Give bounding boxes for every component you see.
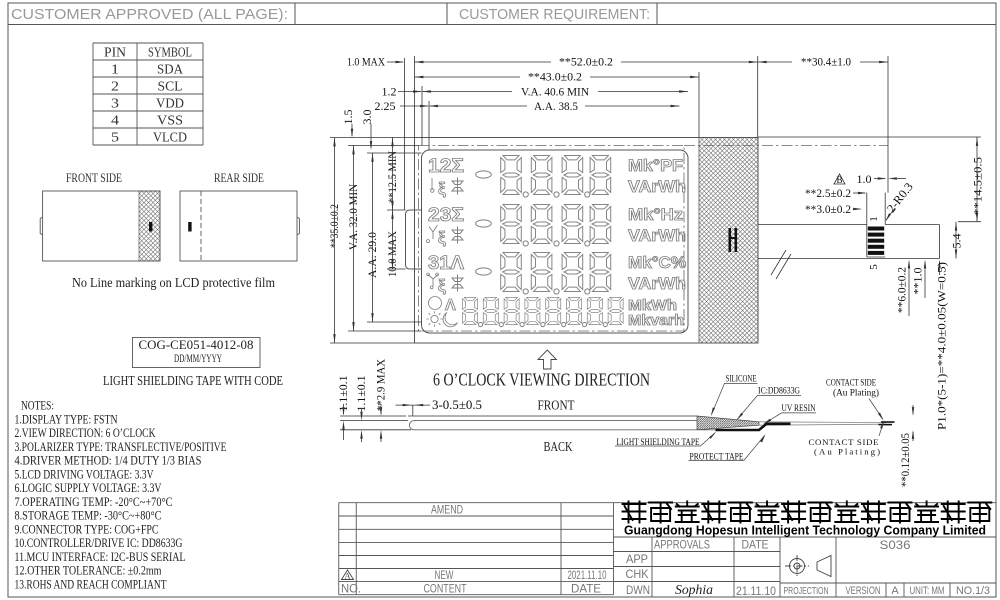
svg-text:2-R0.3: 2-R0.3	[884, 180, 916, 215]
svg-text:DWN: DWN	[626, 583, 650, 597]
svg-text:3.0: 3.0	[360, 110, 374, 125]
svg-text:VERSION: VERSION	[846, 585, 881, 597]
svg-text:BACK: BACK	[544, 439, 573, 454]
svg-text:13.ROHS AND REACH COMPLIANT: 13.ROHS AND REACH COMPLIANT	[15, 577, 167, 591]
svg-text:(Au Plating): (Au Plating)	[814, 447, 880, 457]
svg-text:2021.11.10: 2021.11.10	[568, 568, 607, 582]
svg-text:Λ: Λ	[445, 297, 456, 314]
svg-text:P1.0*(5-1)=**4.0±0.05(W=0.5): P1.0*(5-1)=**4.0±0.05(W=0.5)	[937, 262, 949, 430]
svg-text:(Au Plating): (Au Plating)	[833, 388, 879, 399]
svg-text:1.5: 1.5	[341, 110, 355, 125]
svg-text:8.STORAGE TEMP: -30°C~+80°C: 8.STORAGE TEMP: -30°C~+80°C	[15, 509, 162, 523]
svg-text:Sophia: Sophia	[675, 582, 713, 597]
svg-text:1.DISPLAY TYPE: FSTN: 1.DISPLAY TYPE: FSTN	[15, 412, 118, 426]
svg-text:SYMBOL: SYMBOL	[148, 46, 192, 61]
svg-text:NEW: NEW	[435, 568, 454, 582]
svg-text:NO.1/3: NO.1/3	[956, 585, 990, 597]
svg-text:V.A. 32.0 MIN: V.A. 32.0 MIN	[346, 184, 360, 250]
svg-text:5: 5	[111, 131, 119, 146]
svg-text:**1.0: **1.0	[911, 268, 925, 295]
svg-text:CUSTOMER APPROVED (ALL PAGE):: CUSTOMER APPROVED (ALL PAGE):	[11, 6, 288, 23]
svg-text:5.4: 5.4	[950, 234, 964, 249]
svg-text:CONTACT SIDE: CONTACT SIDE	[826, 379, 876, 389]
svg-text:1: 1	[868, 216, 880, 222]
svg-text:1.0: 1.0	[857, 172, 872, 186]
svg-text:B: B	[836, 175, 842, 185]
svg-text:7.OPERATING TEMP: -20°C~+70°C: 7.OPERATING TEMP: -20°C~+70°C	[15, 495, 173, 509]
svg-text:VArWh: VArWh	[628, 275, 686, 293]
svg-text:**52.0±0.2: **52.0±0.2	[559, 55, 613, 69]
svg-text:6.LOGIC SUPPLY VOLTAGE: 3.3V: 6.LOGIC SUPPLY VOLTAGE: 3.3V	[15, 481, 162, 495]
svg-text:**3.0±0.2: **3.0±0.2	[805, 202, 851, 216]
svg-text:**30.4±1.0: **30.4±1.0	[801, 55, 851, 69]
svg-text:ξ: ξ	[438, 276, 446, 295]
svg-text:1.1±0.1: 1.1±0.1	[354, 376, 368, 412]
svg-text:UNIT: MM: UNIT: MM	[910, 585, 945, 597]
svg-text:COG-CE051-4012-08: COG-CE051-4012-08	[139, 337, 254, 352]
svg-text:4.DRIVER METHOD: 1/4 DUTY 1/3: 4.DRIVER METHOD: 1/4 DUTY 1/3 BIAS	[15, 454, 202, 468]
svg-text:Mkvarh: Mkvarh	[628, 313, 684, 329]
svg-text:A: A	[345, 572, 351, 581]
svg-text:APPROVALS: APPROVALS	[654, 538, 710, 552]
svg-text:4: 4	[111, 114, 119, 129]
svg-text:1.2: 1.2	[382, 85, 397, 99]
svg-text:1.1±0.1: 1.1±0.1	[336, 376, 350, 412]
svg-text:S036: S036	[880, 538, 911, 552]
svg-text:10.0 MAX: 10.0 MAX	[385, 231, 399, 277]
svg-text:31Λ: 31Λ	[428, 253, 464, 274]
svg-text:12Σ: 12Σ	[428, 156, 464, 177]
svg-text:NO.: NO.	[341, 582, 361, 596]
svg-text:VSS: VSS	[157, 114, 183, 129]
svg-text:VDD: VDD	[156, 97, 184, 112]
svg-text:**2.9 MAX: **2.9 MAX	[374, 359, 388, 411]
svg-text:CHK: CHK	[626, 567, 649, 581]
svg-text:FRONT: FRONT	[538, 398, 576, 413]
svg-text:**6.0±0.2: **6.0±0.2	[895, 267, 909, 313]
svg-text:REAR SIDE: REAR SIDE	[214, 170, 264, 185]
svg-text:10.CONTROLLER/DRIVE IC: DD8633: 10.CONTROLLER/DRIVE IC: DD8633G	[15, 536, 183, 550]
svg-text:A: A	[891, 585, 899, 597]
svg-text:SDA: SDA	[157, 63, 184, 78]
svg-text:**35.0±0.2: **35.0±0.2	[327, 204, 341, 248]
svg-text:5: 5	[868, 264, 880, 270]
svg-text:Mk°PF: Mk°PF	[628, 157, 683, 175]
svg-text:VArWh: VArWh	[628, 227, 686, 245]
svg-text:A.A. 29.0: A.A. 29.0	[365, 232, 379, 278]
svg-text:PIN: PIN	[104, 46, 126, 61]
svg-text:NOTES:: NOTES:	[21, 398, 54, 413]
svg-text:AMEND: AMEND	[431, 503, 463, 517]
svg-text:23Σ: 23Σ	[428, 205, 464, 226]
svg-text:MkWh: MkWh	[628, 298, 677, 314]
svg-text:ξ: ξ	[438, 228, 446, 247]
svg-text:CUSTOMER REQUIREMENT:: CUSTOMER REQUIREMENT:	[459, 6, 650, 23]
svg-text:SCL: SCL	[158, 80, 183, 95]
svg-text:UV RESIN: UV RESIN	[782, 404, 816, 414]
svg-text:9.CONNECTOR TYPE: COG+FPC: 9.CONNECTOR TYPE: COG+FPC	[15, 522, 159, 536]
svg-text:**43.0±0.2: **43.0±0.2	[528, 70, 582, 84]
svg-text:11.MCU INTERFACE: I2C-BUS SERI: 11.MCU INTERFACE: I2C-BUS SERIAL	[15, 550, 186, 564]
svg-text:1: 1	[111, 63, 119, 78]
svg-text:V.A. 40.6 MIN: V.A. 40.6 MIN	[521, 85, 589, 99]
svg-text:3.POLARIZER TYPE: TRANSFLECTIV: 3.POLARIZER TYPE: TRANSFLECTIVE/POSITIVE	[15, 440, 227, 454]
svg-text:CONTENT: CONTENT	[424, 582, 467, 596]
svg-text:SILICONE: SILICONE	[726, 375, 757, 385]
svg-text:6 O’CLOCK VIEWING DIRECTION: 6 O’CLOCK VIEWING DIRECTION	[433, 370, 650, 390]
svg-text:**2.5±0.2: **2.5±0.2	[805, 186, 851, 200]
svg-text:Mk°Hz: Mk°Hz	[628, 206, 683, 224]
svg-text:FRONT SIDE: FRONT SIDE	[66, 170, 122, 185]
svg-text:No Line marking on LCD protect: No Line marking on LCD protective film	[72, 276, 275, 291]
svg-text:3: 3	[111, 97, 119, 112]
svg-text:12.OTHER TOLERANCE: ±0.2mm: 12.OTHER TOLERANCE: ±0.2mm	[15, 564, 162, 578]
svg-text:DD/MM/YYYY: DD/MM/YYYY	[174, 351, 222, 365]
svg-text:2.VIEW DIRECTION: 6 O’CLOCK: 2.VIEW DIRECTION: 6 O’CLOCK	[15, 426, 156, 440]
svg-text:PROJECTION: PROJECTION	[784, 585, 829, 597]
svg-text:2: 2	[111, 80, 119, 95]
svg-text:DATE: DATE	[571, 582, 601, 596]
svg-text:**12.5 MIN: **12.5 MIN	[385, 151, 399, 203]
svg-text:LIGHT SHIELDING TAPE WITH CODE: LIGHT SHIELDING TAPE WITH CODE	[103, 373, 283, 388]
svg-text:ξ: ξ	[438, 179, 446, 198]
svg-text:2.25: 2.25	[375, 99, 396, 113]
svg-text:A.A. 38.5: A.A. 38.5	[534, 99, 578, 113]
svg-text:3-0.5±0.5: 3-0.5±0.5	[432, 397, 482, 412]
svg-text:PROTECT TAPE: PROTECT TAPE	[690, 452, 744, 462]
svg-text:VArWh: VArWh	[628, 178, 686, 196]
svg-text:DATE: DATE	[742, 538, 769, 552]
svg-text:CONTACT SIDE: CONTACT SIDE	[809, 437, 879, 447]
svg-text:VLCD: VLCD	[153, 131, 187, 146]
svg-text:APP: APP	[626, 552, 648, 566]
svg-text:Mk°C%: Mk°C%	[628, 254, 686, 272]
svg-text:**0.12±0.05: **0.12±0.05	[900, 433, 912, 487]
svg-text:Guangdong Hopesun Intelligent: Guangdong Hopesun Intelligent Technology…	[624, 523, 986, 538]
svg-text:**14.5±0.5: **14.5±0.5	[971, 157, 985, 215]
svg-text:21.11.10: 21.11.10	[736, 584, 776, 598]
svg-text:5.LCD DRIVING VOLTAGE: 3.3V: 5.LCD DRIVING VOLTAGE: 3.3V	[15, 467, 154, 481]
svg-text:1.0 MAX: 1.0 MAX	[347, 55, 385, 69]
svg-text:IC:DD8633G: IC:DD8633G	[758, 387, 800, 397]
